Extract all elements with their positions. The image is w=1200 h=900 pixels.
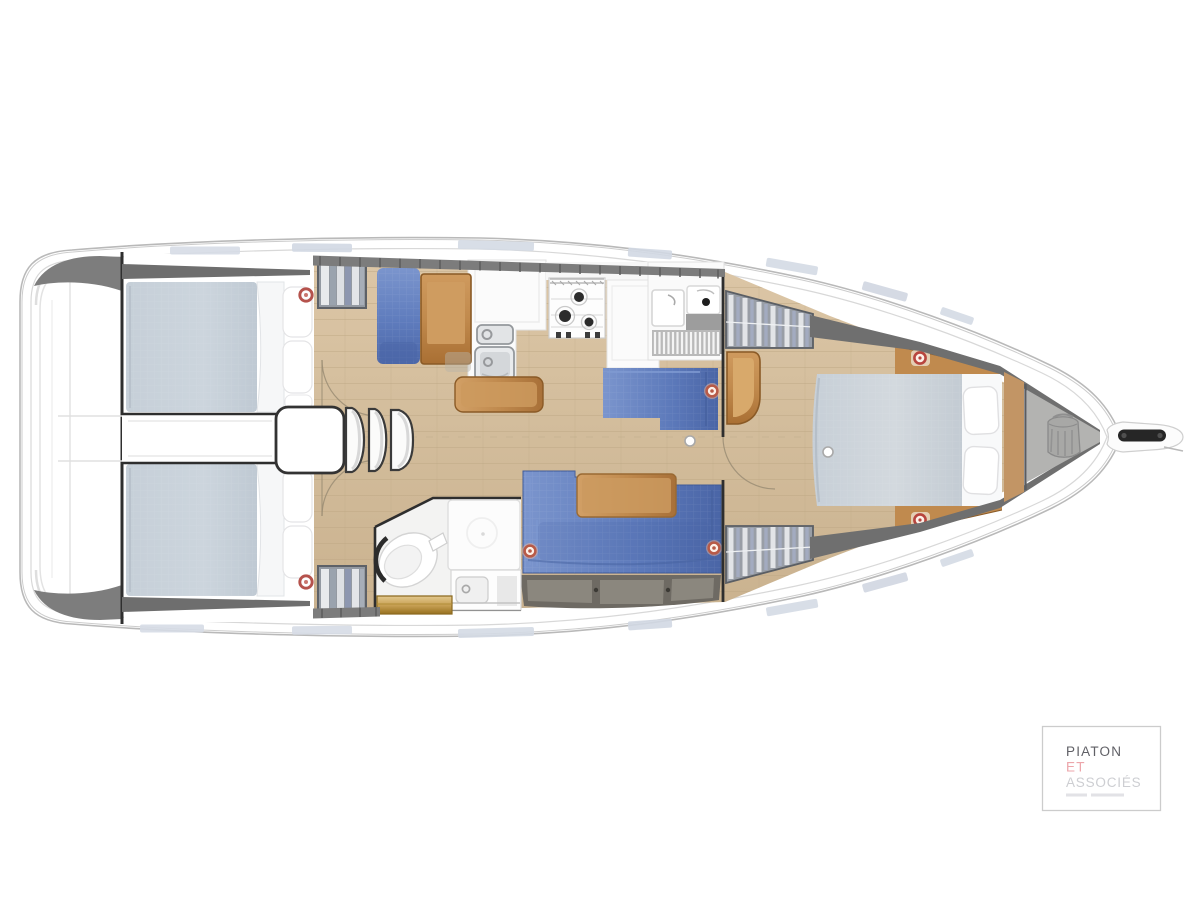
svg-text:ET: ET <box>1066 760 1086 775</box>
svg-text:PIATON: PIATON <box>1066 744 1122 759</box>
svg-text:ASSOCIÉS: ASSOCIÉS <box>1066 775 1141 790</box>
